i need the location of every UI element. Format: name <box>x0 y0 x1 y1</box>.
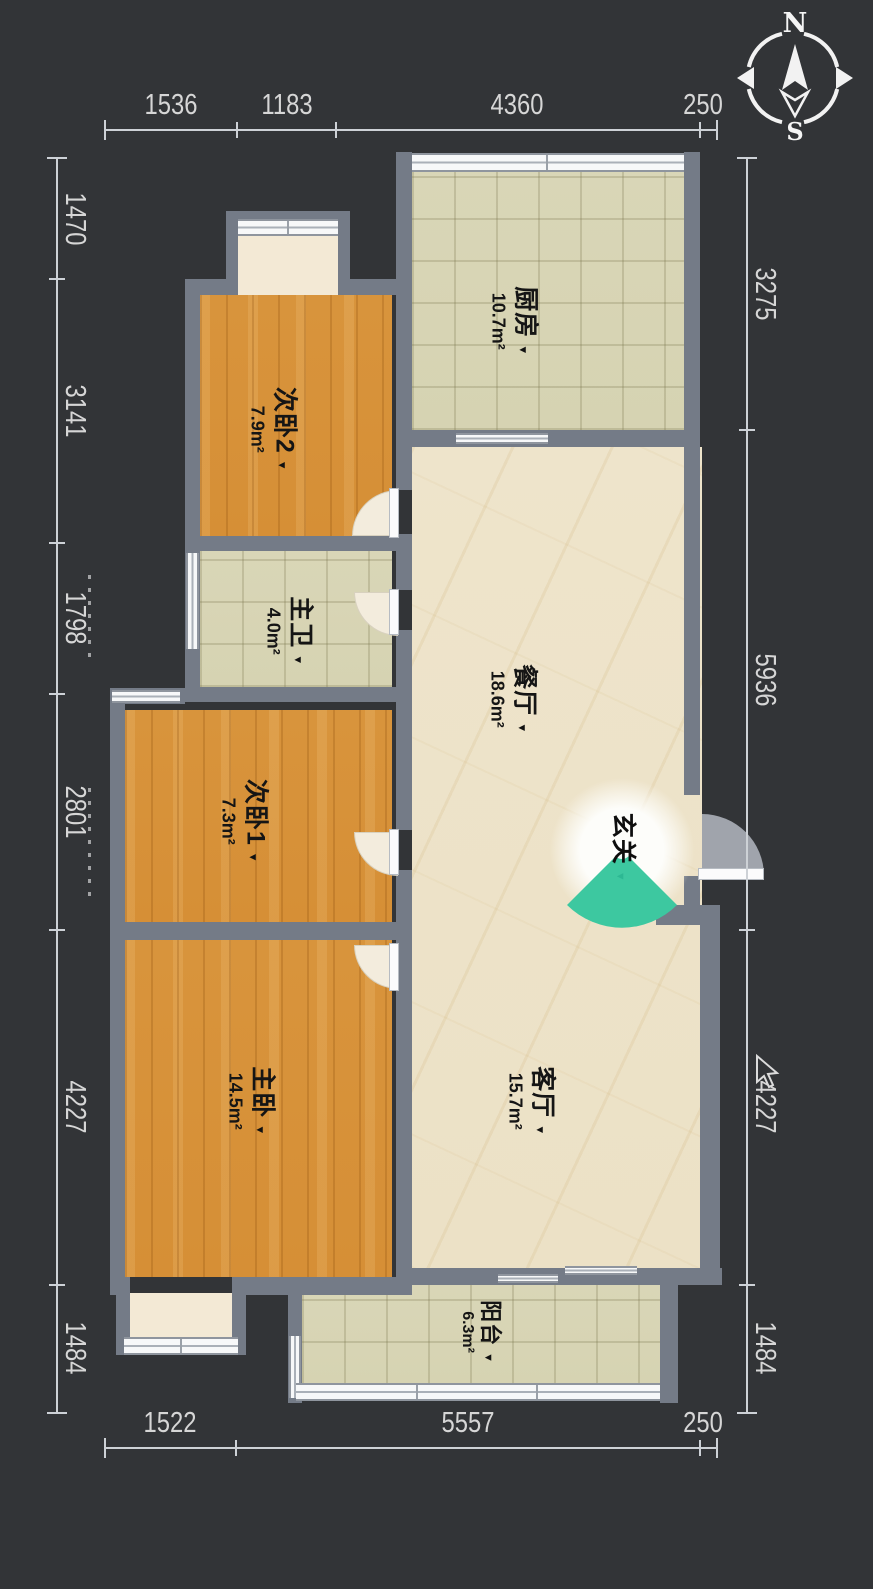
mouse-cursor <box>755 1054 781 1090</box>
dimension-tick <box>49 929 65 931</box>
window-divider <box>546 155 548 170</box>
dimension-tick <box>737 1412 757 1414</box>
wall <box>684 430 700 795</box>
wall <box>350 279 396 295</box>
room-name: 玄关 <box>609 813 637 865</box>
dimension-tick <box>739 929 755 931</box>
dimension-tick <box>47 1412 67 1414</box>
window-bedroom1 <box>112 690 180 703</box>
dimension-tick <box>49 1284 65 1286</box>
dimension-tick <box>739 429 755 431</box>
window-divider <box>287 221 289 234</box>
window-divider <box>180 1339 182 1353</box>
room-area: 10.7m² <box>488 266 509 376</box>
dropdown-icon: ▼ <box>516 344 528 356</box>
compass-north-label: N <box>783 8 808 39</box>
wall <box>396 630 412 830</box>
wall <box>185 536 396 551</box>
dimension-tick <box>737 157 757 159</box>
dimension-value: 4227 <box>59 1066 91 1148</box>
room-name: 次卧2 <box>270 387 298 454</box>
dimension-tick <box>739 1284 755 1286</box>
bay-window-frame <box>338 211 350 295</box>
room-label-living[interactable]: 客厅▼ 15.7m² <box>505 1046 556 1156</box>
room-area: 7.9m² <box>247 374 268 484</box>
room-area: 7.3m² <box>218 766 239 876</box>
room-name: 厨房 <box>511 286 539 338</box>
wall <box>185 279 226 295</box>
room-label-master[interactable]: 主卧▼ 14.5m² <box>225 1046 276 1156</box>
room-name: 次卧1 <box>241 779 269 846</box>
room-area: 4.0m² <box>263 576 284 686</box>
window-divider <box>416 1385 418 1399</box>
door-leaf-bedroom2 <box>389 488 399 538</box>
dimension-value: 1798 <box>59 577 91 659</box>
room-label-bedroom2[interactable]: 次卧2▼ 7.9m² <box>247 374 298 484</box>
dropdown-icon: ▼ <box>291 654 303 666</box>
dimension-line-bottom <box>105 1447 718 1449</box>
extension-guide-dots <box>88 575 91 661</box>
room-area: 6.3m² <box>458 1277 476 1387</box>
room-name: 餐厅 <box>510 664 538 716</box>
dimension-value: 5557 <box>427 1407 509 1439</box>
window-bath <box>186 553 199 649</box>
bay-window-sill <box>130 1293 232 1337</box>
door-leaf-entrance <box>698 868 764 880</box>
dimension-tick <box>104 1438 106 1458</box>
room-name: 主卧 <box>248 1066 276 1118</box>
dimension-value: 2801 <box>59 771 91 853</box>
room-label-balcony[interactable]: 阳台▼ 6.3m² <box>458 1277 502 1387</box>
wall <box>110 688 125 1295</box>
door-leaf-master <box>389 943 399 991</box>
dimension-value: 3275 <box>749 253 781 335</box>
dropdown-icon: ▼ <box>253 1124 265 1136</box>
dimension-value: 1536 <box>130 89 212 121</box>
dimension-value: 3141 <box>59 370 91 452</box>
dimension-tick <box>235 1440 237 1456</box>
dimension-value: 1484 <box>749 1307 781 1389</box>
compass-west-arrow <box>737 67 754 89</box>
compass-needle-south <box>782 92 808 116</box>
balcony-sliding-door <box>498 1274 558 1283</box>
bay-window-sill <box>238 236 338 295</box>
dropdown-icon: ▼ <box>275 460 287 472</box>
room-label-dining[interactable]: 餐厅▼ 18.6m² <box>487 644 538 754</box>
dimension-tick <box>699 122 701 138</box>
balcony-sliding-door <box>565 1266 637 1275</box>
extension-guide-dots <box>88 788 91 902</box>
dimension-tick <box>104 120 106 140</box>
dimension-value: 1183 <box>246 89 328 121</box>
room-kitchen-floor <box>412 172 684 430</box>
dropdown-icon: ▼ <box>614 871 626 883</box>
room-label-kitchen[interactable]: 厨房▼ 10.7m² <box>488 266 539 376</box>
dimension-value: 250 <box>662 1407 744 1439</box>
compass-needle-north <box>782 44 808 90</box>
dimension-line-right <box>746 158 748 1414</box>
dimension-value: 1522 <box>129 1407 211 1439</box>
window-kitchen <box>412 153 684 172</box>
dimension-line-left <box>56 158 58 1414</box>
wall <box>660 1268 678 1403</box>
dimension-tick <box>716 120 718 140</box>
wall <box>110 922 396 940</box>
door-leaf-bath <box>389 589 399 635</box>
room-name: 主卫 <box>286 596 314 648</box>
dimension-tick <box>47 157 67 159</box>
wall <box>700 905 720 1285</box>
dimension-tick <box>716 1438 718 1458</box>
dimension-tick <box>236 122 238 138</box>
bay-window-frame <box>226 211 238 295</box>
door-arc-entrance <box>702 814 764 876</box>
dropdown-icon: ▼ <box>482 1352 494 1364</box>
wall <box>396 430 700 447</box>
room-label-bath[interactable]: 主卫▼ 4.0m² <box>263 576 314 686</box>
wall <box>246 1277 412 1295</box>
room-name: 阳台 <box>478 1300 503 1346</box>
dimension-value: 1484 <box>59 1307 91 1389</box>
dimension-tick <box>49 693 65 695</box>
room-label-foyer[interactable]: 玄关▼ <box>608 793 636 903</box>
room-area: 15.7m² <box>505 1046 526 1156</box>
room-name: 客厅 <box>528 1066 556 1118</box>
wall <box>185 687 396 702</box>
kitchen-pass-window <box>456 433 548 444</box>
compass: N S <box>731 6 859 146</box>
dimension-value: 1470 <box>59 178 91 260</box>
dimension-tick <box>335 122 337 138</box>
door-leaf-bedroom1 <box>389 829 399 875</box>
dropdown-icon: ▼ <box>246 852 258 864</box>
dimension-line-top <box>105 129 718 131</box>
dimension-tick <box>699 1440 701 1456</box>
wall <box>684 152 700 430</box>
dimension-tick <box>49 542 65 544</box>
dropdown-icon: ▼ <box>533 1124 545 1136</box>
room-area: 14.5m² <box>225 1046 246 1156</box>
compass-east-arrow <box>836 67 853 89</box>
dropdown-icon: ▼ <box>515 722 527 734</box>
room-area: 18.6m² <box>487 644 508 754</box>
room-label-bedroom1[interactable]: 次卧1▼ 7.3m² <box>218 766 269 876</box>
window-divider <box>536 1385 538 1399</box>
wall <box>396 534 412 590</box>
floorplan-canvas: 厨房▼ 10.7m² 次卧2▼ 7.9m² 主卫▼ 4.0m² 餐厅▼ 18.6… <box>0 0 873 1589</box>
dimension-value: 4360 <box>476 89 558 121</box>
dimension-value: 5936 <box>749 639 781 721</box>
wall <box>396 870 412 922</box>
compass-south-label: S <box>786 117 803 146</box>
dimension-tick <box>49 278 65 280</box>
